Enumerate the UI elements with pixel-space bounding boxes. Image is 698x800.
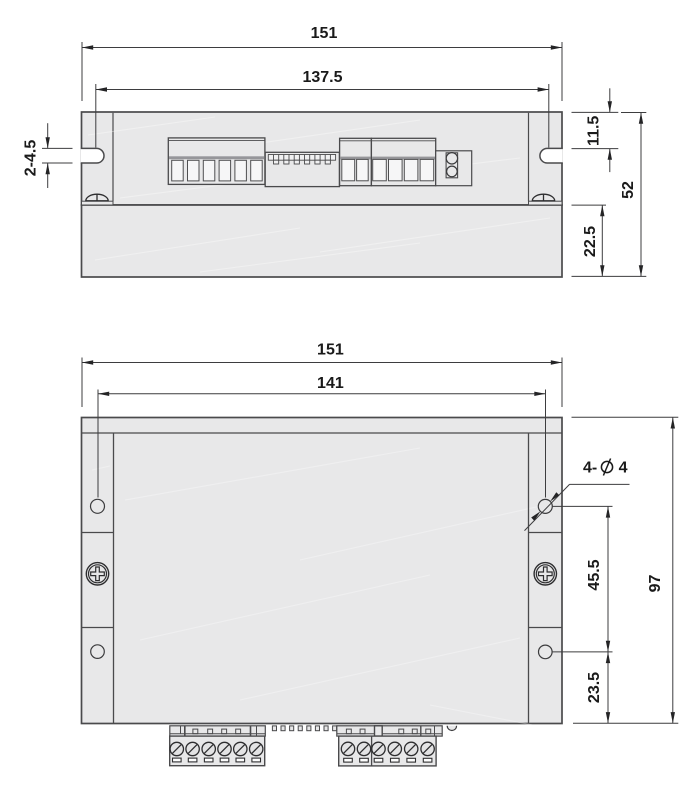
svg-text:97: 97 [647,575,664,593]
svg-text:52: 52 [620,181,637,199]
svg-text:22.5: 22.5 [582,226,599,257]
svg-text:23.5: 23.5 [586,672,603,703]
svg-text:4-: 4- [583,460,597,477]
svg-text:137.5: 137.5 [302,69,342,86]
svg-text:45.5: 45.5 [586,559,603,590]
svg-text:151: 151 [311,25,338,42]
svg-text:4: 4 [619,460,628,477]
svg-text:2-4.5: 2-4.5 [22,140,39,177]
svg-text:11.5: 11.5 [586,116,603,146]
svg-text:141: 141 [317,375,344,392]
svg-text:151: 151 [317,341,344,358]
